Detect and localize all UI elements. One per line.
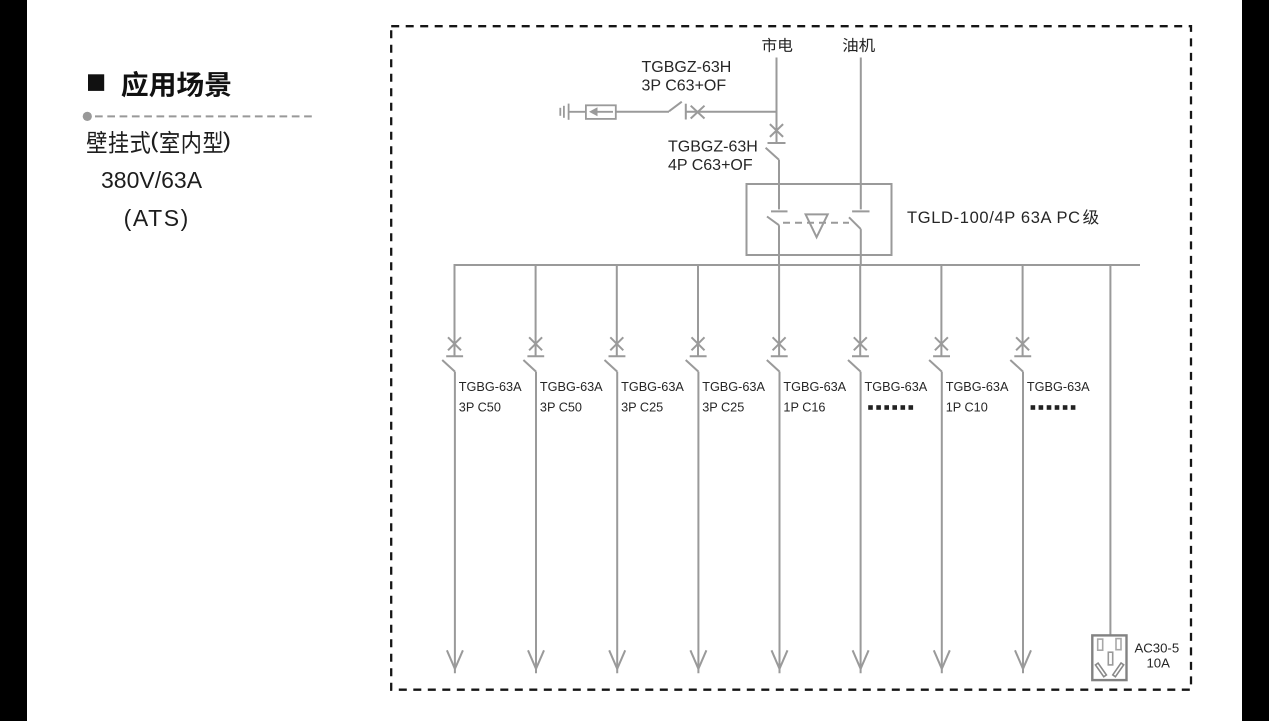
svg-text:TGBG-63A: TGBG-63A	[946, 380, 1009, 394]
svg-text:380V/63A: 380V/63A	[101, 167, 203, 193]
svg-text:(ATS): (ATS)	[124, 205, 190, 231]
svg-text:4P C63+OF: 4P C63+OF	[668, 157, 753, 174]
svg-text:TGBGZ-63H: TGBGZ-63H	[668, 138, 758, 155]
svg-text:TGLD-100/4P 63A PC: TGLD-100/4P 63A PC	[907, 209, 1081, 227]
svg-text:1P C16: 1P C16	[783, 401, 825, 415]
svg-text:TGBG-63A: TGBG-63A	[459, 380, 522, 394]
svg-text:3P C25: 3P C25	[621, 401, 663, 415]
svg-text:TGBGZ-63H: TGBGZ-63H	[642, 59, 732, 76]
svg-text:TGBG-63A: TGBG-63A	[783, 380, 846, 394]
svg-text:3P C50: 3P C50	[540, 401, 582, 415]
svg-text:AC30-5: AC30-5	[1134, 640, 1179, 655]
svg-text:3P C50: 3P C50	[459, 401, 501, 415]
svg-text:TGBG-63A: TGBG-63A	[540, 380, 603, 394]
svg-text:3P C63+OF: 3P C63+OF	[642, 77, 727, 94]
svg-text:TGBG-63A: TGBG-63A	[621, 380, 684, 394]
svg-text:TGBG-63A: TGBG-63A	[702, 380, 765, 394]
svg-text:TGBG-63A: TGBG-63A	[865, 380, 928, 394]
svg-text:10A: 10A	[1146, 655, 1170, 670]
svg-text:3P C25: 3P C25	[702, 401, 744, 415]
svg-text:TGBG-63A: TGBG-63A	[1027, 380, 1090, 394]
svg-text:1P C10: 1P C10	[946, 401, 988, 415]
